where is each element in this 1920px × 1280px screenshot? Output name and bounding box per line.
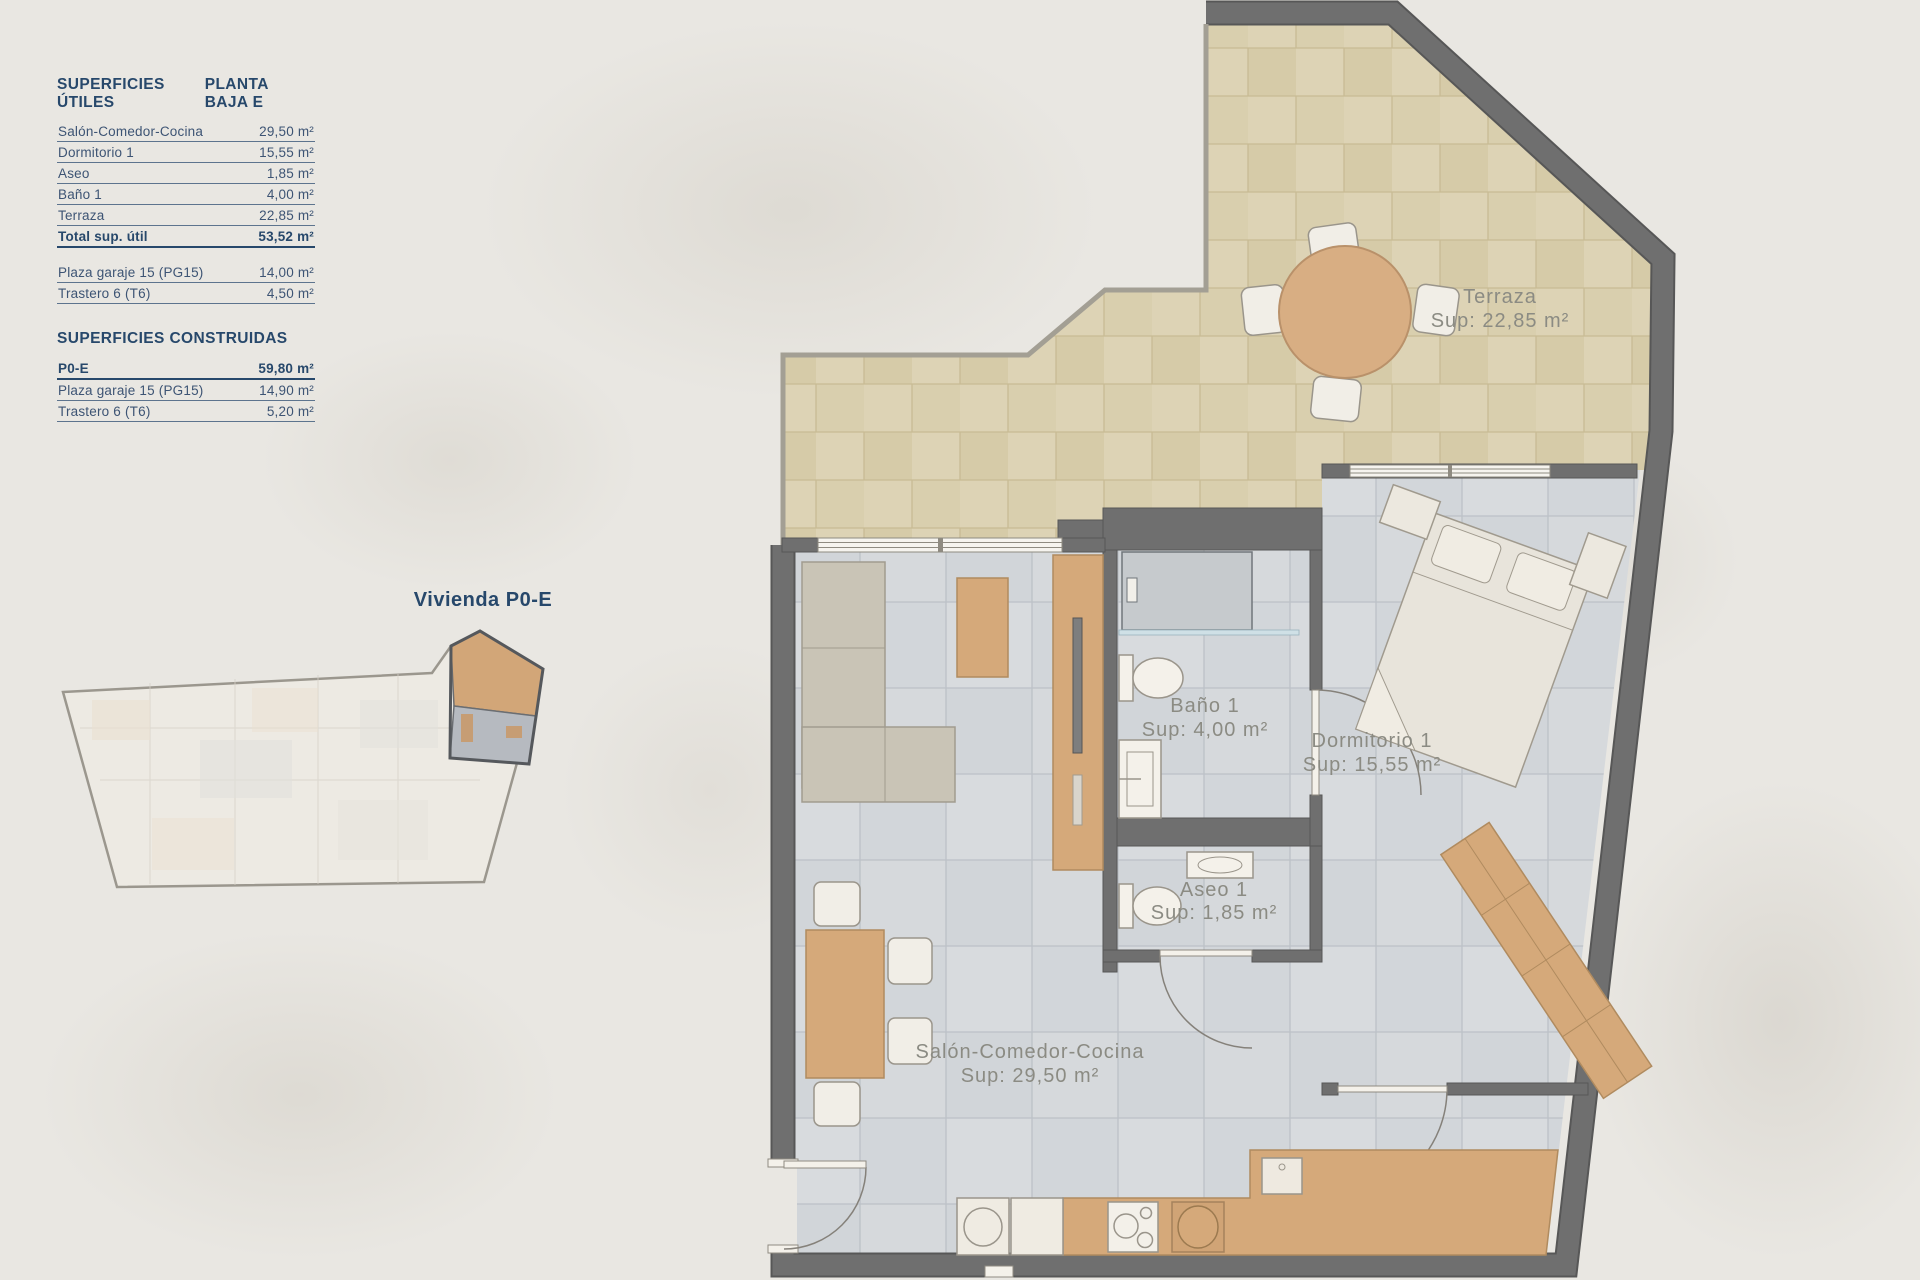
legend-row: Salón-Comedor-Cocina 29,50 m² xyxy=(57,121,315,142)
surface-legend: SUPERFICIES ÚTILES PLANTA BAJA E Salón-C… xyxy=(57,76,315,422)
row-label: P0-E xyxy=(58,361,89,376)
unit-terrace xyxy=(451,631,543,716)
row-value: 4,00 m² xyxy=(267,187,314,202)
dining-chair xyxy=(814,1082,860,1126)
row-value: 14,00 m² xyxy=(259,265,314,280)
kitchen-cabinet xyxy=(1011,1198,1063,1255)
room-sup-aseo: Sup: 1,85 m² xyxy=(1151,902,1278,924)
window-mullion xyxy=(938,538,943,552)
wall xyxy=(1310,550,1322,690)
entrance-opening xyxy=(769,1167,797,1245)
faint-room xyxy=(360,700,438,748)
room-name-aseo: Aseo 1 xyxy=(1180,879,1248,901)
row-value: 15,55 m² xyxy=(259,145,314,160)
floor-plan-page: Terraza Sup: 22,85 m² Baño 1 Sup: 4,00 m… xyxy=(0,0,1920,1280)
row-label: Aseo xyxy=(58,166,90,181)
legend-row: Terraza 22,85 m² xyxy=(57,205,315,226)
legend-row: Baño 1 4,00 m² xyxy=(57,184,315,205)
shower xyxy=(1122,552,1252,630)
highlighted-unit xyxy=(450,631,543,764)
row-label: Terraza xyxy=(58,208,104,223)
row-label: Plaza garaje 15 (PG15) xyxy=(58,265,203,280)
entrance-door-leaf xyxy=(784,1161,866,1168)
sofa-chaise xyxy=(802,727,955,802)
faint-room xyxy=(200,740,292,798)
legend-row: Dormitorio 1 15,55 m² xyxy=(57,142,315,163)
terrace-round-table xyxy=(1279,246,1411,378)
room-name-salon: Salón-Comedor-Cocina xyxy=(916,1041,1145,1063)
toilet-tank xyxy=(1119,655,1133,701)
room-name-terraza: Terraza xyxy=(1463,286,1537,308)
faint-room xyxy=(152,818,234,870)
toilet-tank xyxy=(1119,884,1133,928)
overview-caption: Vivienda P0-E xyxy=(403,589,563,612)
wall xyxy=(1062,538,1105,552)
dining-table xyxy=(806,930,884,1078)
legend-row: Trastero 6 (T6) 4,50 m² xyxy=(57,283,315,304)
overview-plan xyxy=(63,631,543,887)
row-label: Baño 1 xyxy=(58,187,102,202)
constructed-row-main: P0-E 59,80 m² xyxy=(57,358,315,380)
main-floor-plan: Terraza Sup: 22,85 m² Baño 1 Sup: 4,00 m… xyxy=(768,13,1663,1277)
legend-row: Plaza garaje 15 (PG15) 14,00 m² xyxy=(57,262,315,283)
row-label: Dormitorio 1 xyxy=(58,145,134,160)
tv-shelf xyxy=(1073,775,1082,825)
row-value: 22,85 m² xyxy=(259,208,314,223)
room-name-dormitorio: Dormitorio 1 xyxy=(1312,730,1433,752)
row-value: 4,50 m² xyxy=(267,286,314,301)
wall xyxy=(1103,950,1160,962)
room-sup-bano: Sup: 4,00 m² xyxy=(1142,719,1269,741)
legend-spacer xyxy=(57,248,315,262)
faint-room xyxy=(338,800,428,860)
plan-title: PLANTA BAJA E xyxy=(205,76,315,112)
row-value: 59,80 m² xyxy=(258,361,314,376)
kitchen-sink xyxy=(1178,1206,1218,1248)
row-label: Trastero 6 (T6) xyxy=(58,404,151,419)
unit-wood-accent xyxy=(461,714,473,742)
wall xyxy=(782,538,818,552)
row-label: Total sup. útil xyxy=(58,229,148,244)
legend-title: SUPERFICIES ÚTILES xyxy=(57,76,205,112)
wall xyxy=(1447,1083,1588,1095)
unit-wood-accent xyxy=(506,726,522,738)
row-value: 1,85 m² xyxy=(267,166,314,181)
room-sup-salon: Sup: 29,50 m² xyxy=(961,1065,1100,1087)
wall xyxy=(1322,1083,1338,1095)
legend-total-row: Total sup. útil 53,52 m² xyxy=(57,226,315,248)
wall xyxy=(1103,508,1322,550)
legend-row: Aseo 1,85 m² xyxy=(57,163,315,184)
constructed-title: SUPERFICIES CONSTRUIDAS xyxy=(57,330,315,348)
tv-screen xyxy=(1073,618,1082,753)
shower-handle xyxy=(1127,578,1137,602)
wall xyxy=(1117,818,1310,846)
wall xyxy=(1310,846,1322,962)
kitchen-appliance xyxy=(1262,1158,1302,1194)
terrace-chair xyxy=(1310,376,1362,423)
aseo-sink-unit xyxy=(1187,852,1253,878)
row-value: 5,20 m² xyxy=(267,404,314,419)
bedroom-door-leaf xyxy=(1338,1086,1447,1092)
coffee-table xyxy=(957,578,1008,677)
window-mullion xyxy=(1448,465,1452,477)
row-label: Salón-Comedor-Cocina xyxy=(58,124,203,139)
shower-glass xyxy=(1119,630,1299,635)
dining-chair xyxy=(888,938,932,984)
row-label: Plaza garaje 15 (PG15) xyxy=(58,383,203,398)
faint-room xyxy=(92,700,150,740)
room-sup-terraza: Sup: 22,85 m² xyxy=(1431,310,1570,332)
exterior-door-threshold xyxy=(985,1266,1013,1277)
dining-chair xyxy=(814,882,860,926)
legend-row: Plaza garaje 15 (PG15) 14,90 m² xyxy=(57,380,315,401)
wall xyxy=(1252,950,1322,962)
row-value: 14,90 m² xyxy=(259,383,314,398)
row-value: 53,52 m² xyxy=(258,229,314,244)
legend-header: SUPERFICIES ÚTILES PLANTA BAJA E xyxy=(57,76,315,112)
toilet-door-leaf xyxy=(1160,950,1252,956)
row-value: 29,50 m² xyxy=(259,124,314,139)
room-name-bano: Baño 1 xyxy=(1170,695,1239,717)
legend-row: Trastero 6 (T6) 5,20 m² xyxy=(57,401,315,422)
faint-room xyxy=(252,688,318,732)
row-label: Trastero 6 (T6) xyxy=(58,286,151,301)
wall xyxy=(1103,508,1117,972)
wall xyxy=(1310,795,1322,850)
toilet-bowl xyxy=(1133,658,1183,698)
room-sup-dormitorio: Sup: 15,55 m² xyxy=(1303,754,1442,776)
